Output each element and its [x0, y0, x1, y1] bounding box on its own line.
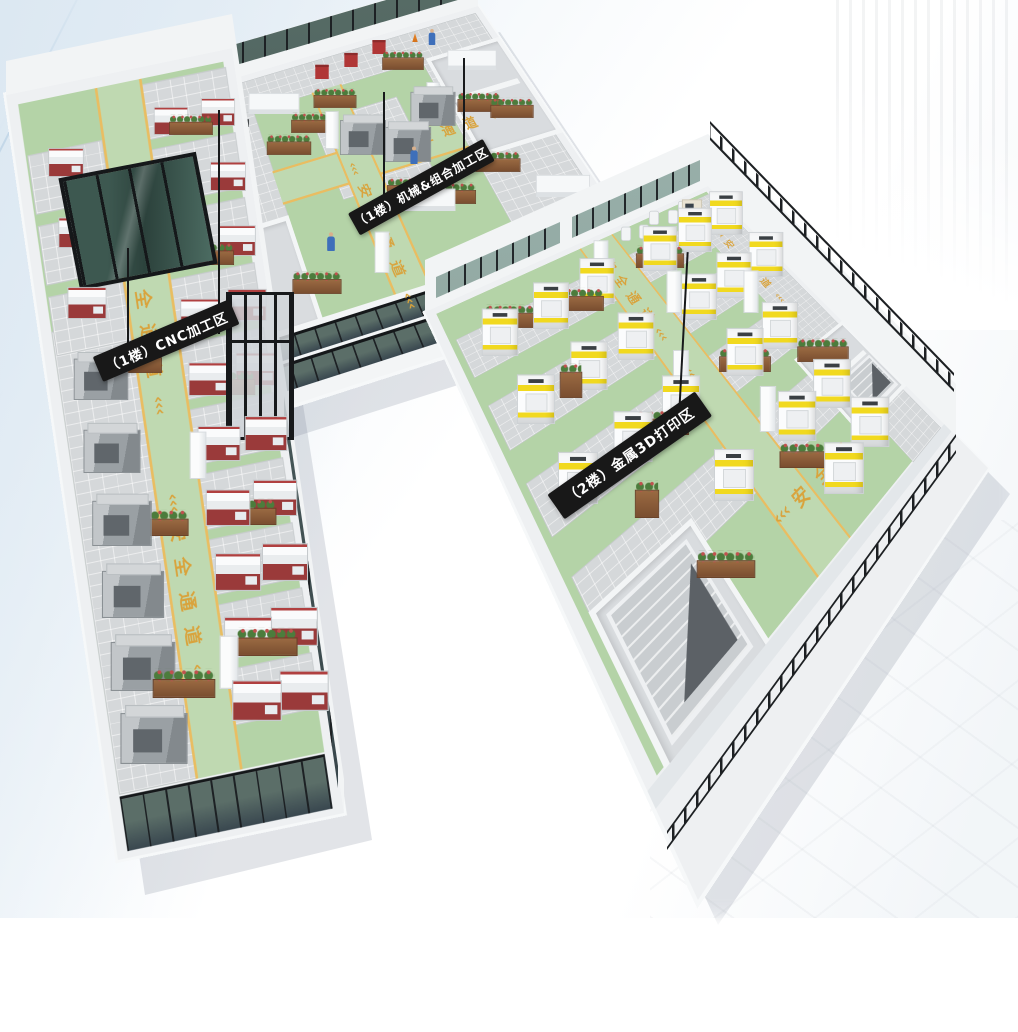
background-crosshatch	[650, 520, 1018, 918]
background-stripes	[836, 0, 1018, 330]
banner-pole	[218, 110, 220, 334]
factory-3d-overview: { "scene": { "description": "3D isometri…	[0, 0, 1018, 918]
